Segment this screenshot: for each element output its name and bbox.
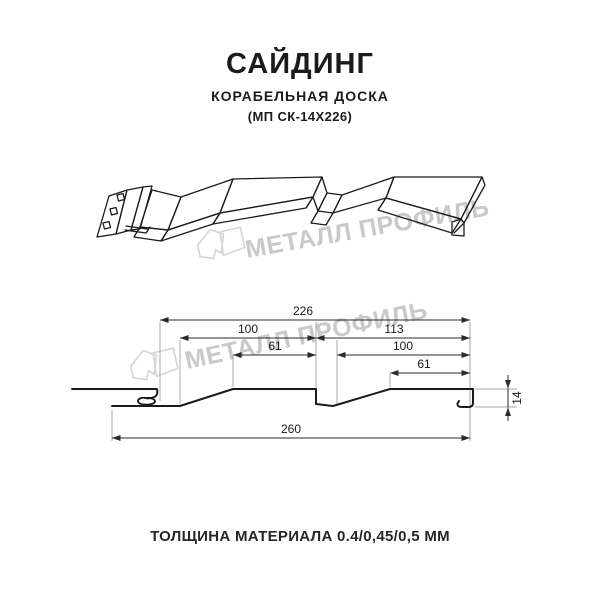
product-subtitle: КОРАБЕЛЬНАЯ ДОСКА: [0, 88, 600, 104]
dim-coverage-width: 226: [293, 304, 313, 318]
cross-section-view: МЕТАЛЛ ПРОФИЛЬ 226: [0, 295, 600, 465]
profile-3d-view: МЕТАЛЛ ПРОФИЛЬ: [0, 140, 600, 290]
product-code: (МП СК-14Х226): [0, 109, 600, 124]
dim-right-panel-inner: 100: [393, 339, 413, 353]
dim-overall-width: 260: [281, 422, 301, 436]
product-drawing-page: САЙДИНГ КОРАБЕЛЬНАЯ ДОСКА (МП СК-14Х226): [0, 0, 600, 600]
dim-left-panel-top: 61: [268, 339, 282, 353]
dim-left-panel-width: 100: [238, 322, 258, 336]
section-profile: [72, 389, 473, 407]
dim-right-panel-top: 61: [417, 357, 431, 371]
page-title: САЙДИНГ: [0, 50, 600, 79]
title-block: САЙДИНГ КОРАБЕЛЬНАЯ ДОСКА (МП СК-14Х226): [0, 50, 600, 124]
metal-profil-logo-icon: [198, 227, 245, 258]
dim-right-panel-width: 113: [384, 322, 403, 336]
dimension-lines: [112, 320, 508, 438]
material-thickness-note: ТОЛЩИНА МАТЕРИАЛА 0.4/0,45/0,5 ММ: [0, 528, 600, 545]
metal-profil-logo-icon: [131, 348, 178, 379]
dim-profile-height: 14: [510, 391, 524, 405]
